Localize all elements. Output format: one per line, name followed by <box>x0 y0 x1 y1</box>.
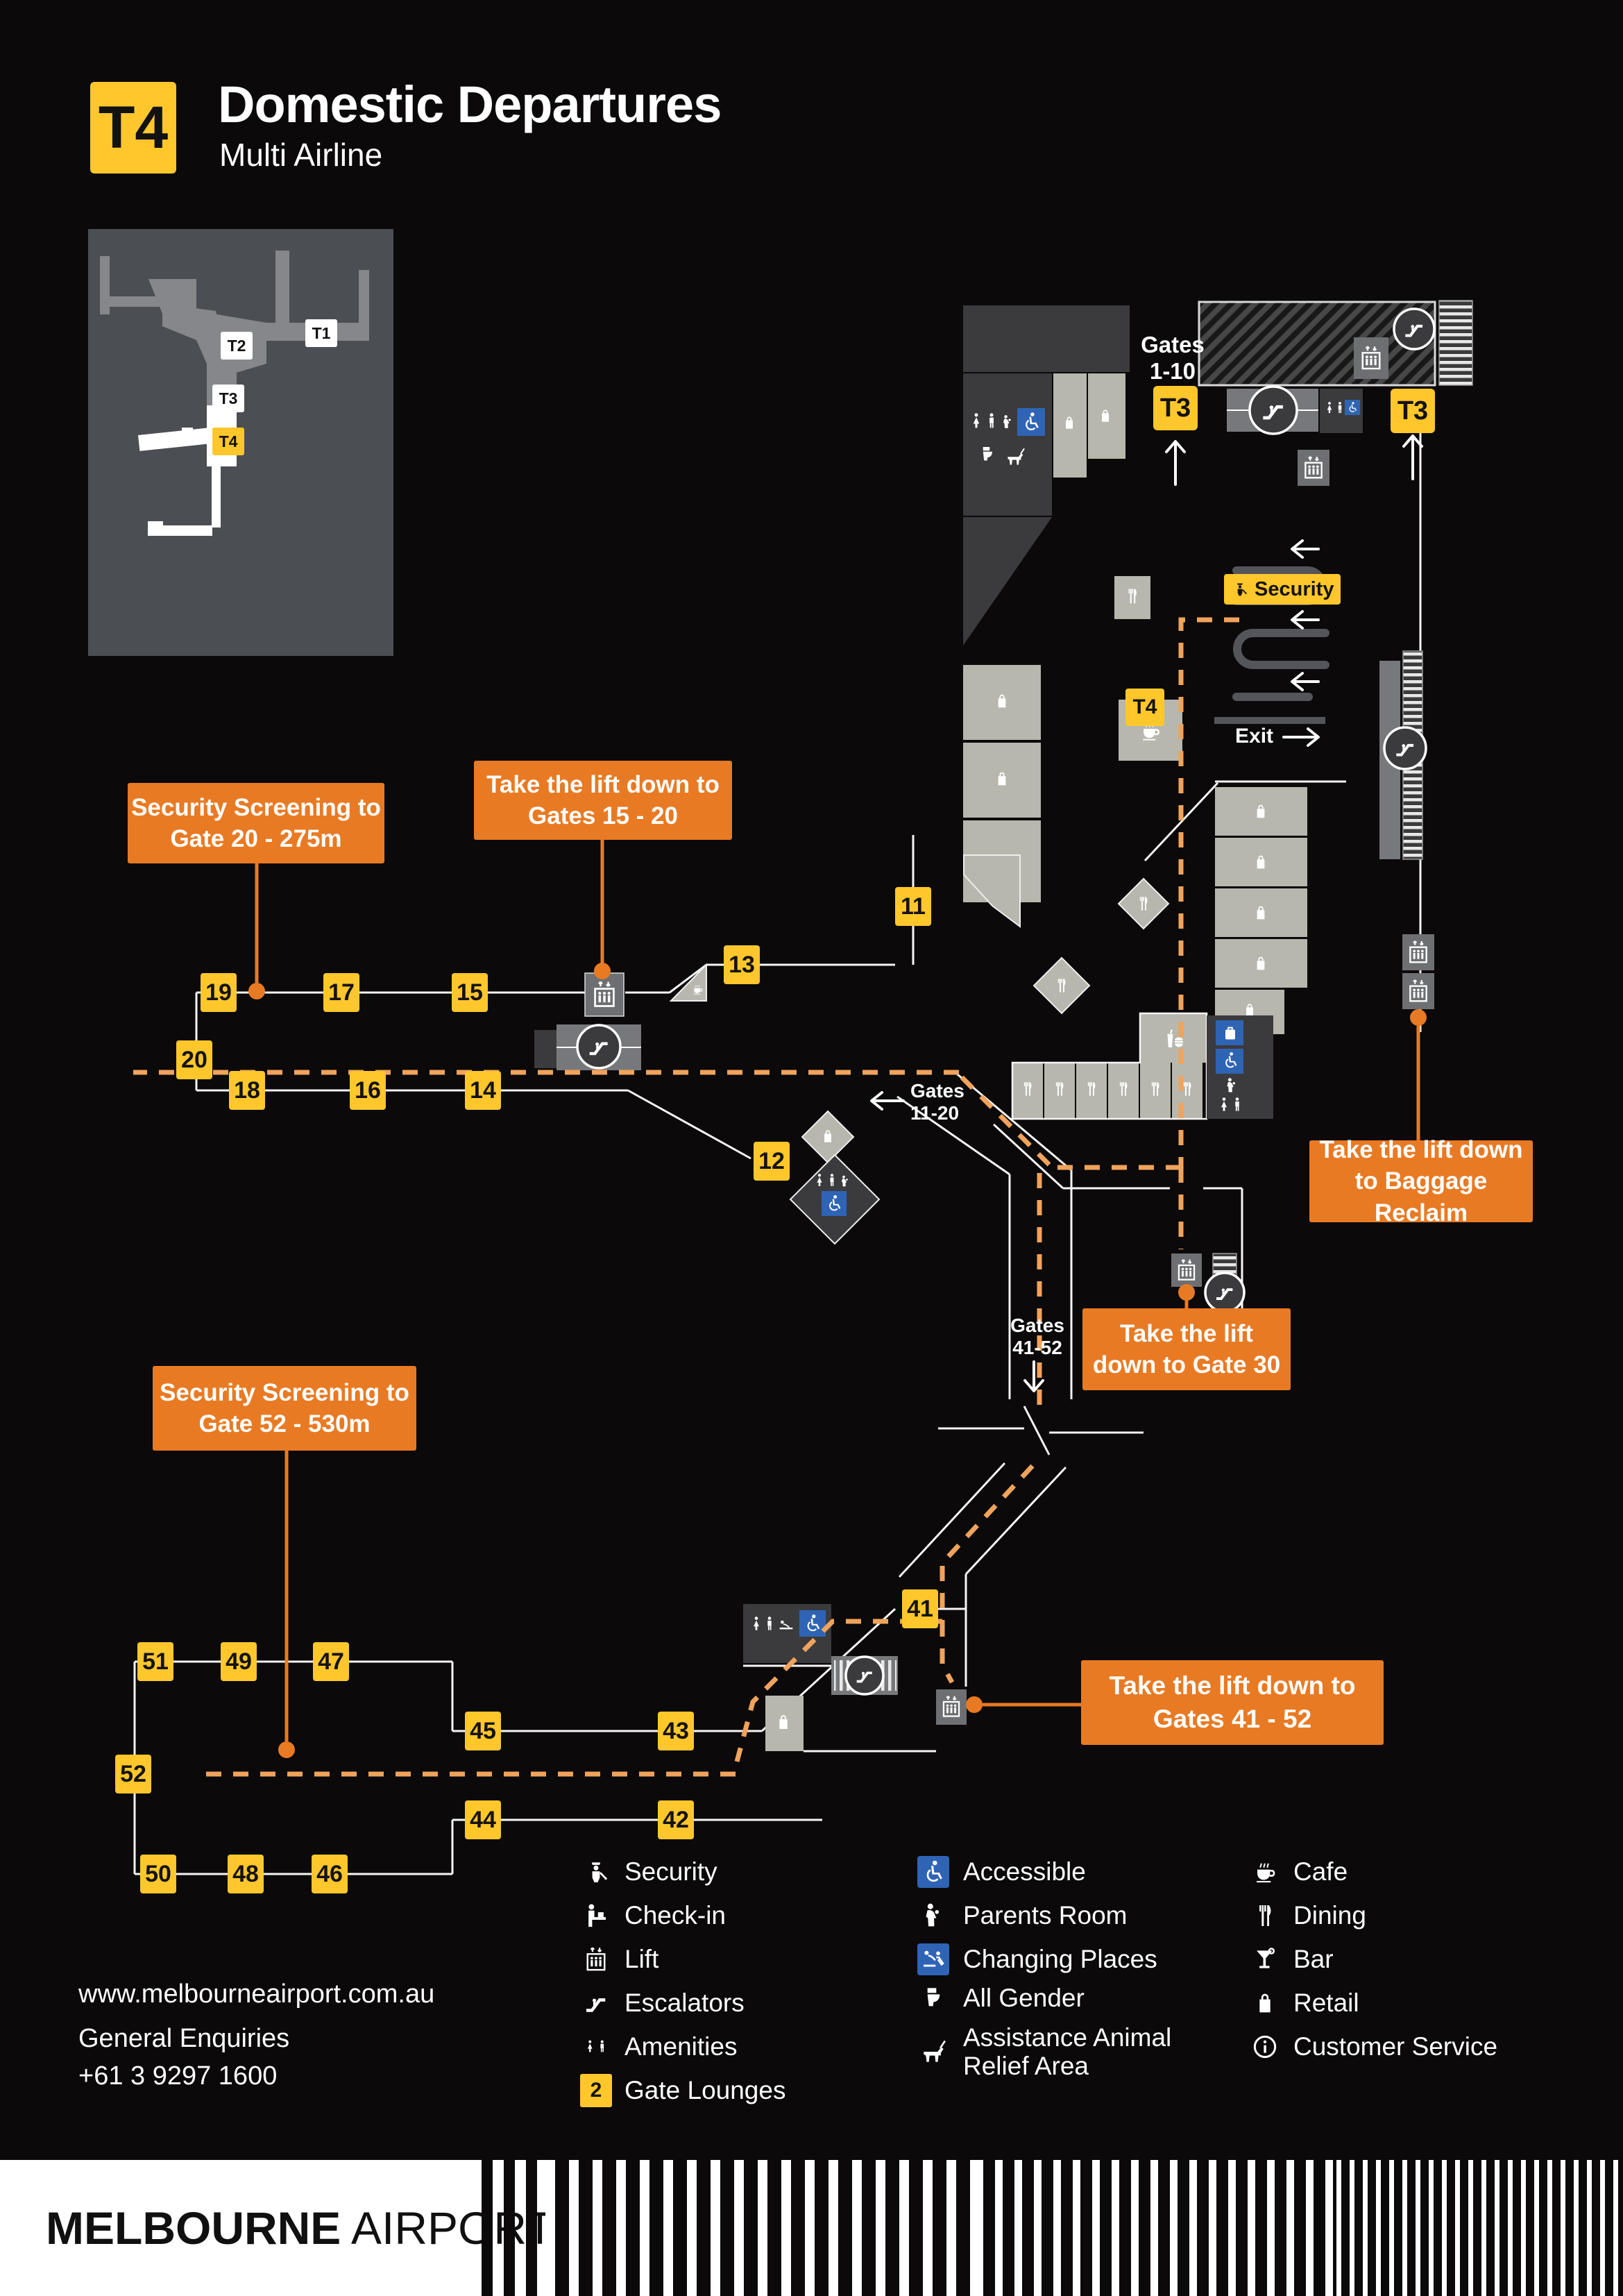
terminal-badge: T4 <box>90 82 176 174</box>
escalator-gates15 <box>534 1024 641 1070</box>
legend-customer-service: Customer Service <box>1249 2031 1497 2063</box>
legend-assistance-animal: Assistance Animal Relief Area <box>917 2024 1171 2080</box>
gate-badge-13: 13 <box>724 945 760 984</box>
gate-badge-19: 19 <box>201 973 237 1012</box>
lift-top-right <box>1354 337 1388 379</box>
callout-lift-baggage: Take the lift downto Baggage Reclaim <box>1309 1140 1533 1222</box>
gate-badge-14: 14 <box>465 1071 501 1110</box>
gate-badge-46: 46 <box>312 1855 348 1893</box>
minimap-t2-label: T2 <box>221 332 253 360</box>
gate-badge-16: 16 <box>350 1071 386 1110</box>
legend-checkin: Check-in <box>580 1900 726 1932</box>
gates-11-20-label: Gates 11-20 <box>910 1080 965 1124</box>
legend-gate-lounges: 2 Gate Lounges <box>580 2074 785 2107</box>
legend-lift: Lift <box>580 1943 658 1975</box>
gate-badge-11: 11 <box>895 887 931 926</box>
gate-badge-41: 41 <box>902 1589 938 1628</box>
escalator-top-right <box>1394 309 1434 349</box>
stairs-top-right <box>1439 301 1472 385</box>
accessible-icon <box>917 1856 949 1888</box>
gate-badge-47: 47 <box>313 1642 349 1681</box>
lift-gates4152 <box>936 1689 967 1725</box>
bar-icon <box>1249 1943 1281 1975</box>
gate-badge-52: 52 <box>115 1755 151 1793</box>
callout-lift-gates-15-20: Take the lift down toGates 15 - 20 <box>474 761 732 840</box>
footer-logo-box: MELBOURNE AIRPORT <box>0 2160 545 2296</box>
retail-diamond <box>802 1111 853 1163</box>
legend-security: Security <box>580 1856 717 1888</box>
dining-icon <box>1249 1900 1281 1932</box>
gate-badge-15: 15 <box>452 973 488 1012</box>
amenities-bottom-block <box>743 1604 831 1663</box>
legend-bar: Bar <box>1249 1943 1334 1975</box>
security-icon <box>1231 580 1249 598</box>
legend-cafe: Cafe <box>1249 1856 1348 1888</box>
terminal-map-page: T4 Domestic Departures Multi Airline T1 … <box>0 0 1623 2296</box>
exit-label: Exit <box>1235 725 1273 749</box>
gate-badge-42: 42 <box>658 1800 694 1839</box>
legend-accessible: Accessible <box>917 1856 1086 1888</box>
minimap-t4-label: T4 <box>212 428 244 455</box>
callout-security-gate20: Security Screening toGate 20 - 275m <box>128 783 384 863</box>
gate-badge-20: 20 <box>176 1040 212 1079</box>
lift-mid <box>1298 450 1329 486</box>
general-enquiries-label: General Enquiries <box>78 2024 289 2054</box>
map-break <box>938 1406 1144 1455</box>
walkway-escalator-bottom <box>831 1656 898 1695</box>
barcode-stripes <box>1336 2160 1623 2296</box>
gate-badge-48: 48 <box>228 1855 264 1893</box>
gates-1-10-label: Gates 1-10 <box>1110 332 1235 385</box>
gates-41-52-label: Gates 41-52 <box>999 1315 1076 1359</box>
legend-retail: Retail <box>1249 1987 1359 2019</box>
gate-badge-45: 45 <box>465 1712 501 1750</box>
brand-logo: MELBOURNE AIRPORT <box>46 2202 554 2254</box>
gate-badge-43: 43 <box>658 1712 694 1750</box>
gate-badge-51: 51 <box>137 1642 173 1681</box>
gate-badge-49: 49 <box>221 1642 257 1681</box>
t4-map-badge: T4 <box>1125 689 1164 726</box>
t3-badge-left: T3 <box>1153 386 1198 430</box>
page-subtitle: Multi Airline <box>219 136 382 174</box>
page-title: Domestic Departures <box>218 75 721 134</box>
legend-parents-room: Parents Room <box>917 1900 1128 1932</box>
gate-badge-17: 17 <box>323 973 359 1012</box>
amenities-tall-block <box>1207 1015 1273 1119</box>
parents-room-icon <box>917 1900 949 1932</box>
all-gender-icon <box>917 1982 949 2014</box>
callout-security-gate52: Security Screening toGate 52 - 530m <box>153 1366 416 1451</box>
gate-lounge-badge-icon: 2 <box>580 2074 612 2107</box>
escalator-mid-cluster <box>1227 387 1363 434</box>
minimap-t1-label: T1 <box>305 319 337 347</box>
lift-icon <box>580 1943 612 1975</box>
retail-icon <box>1249 1987 1281 2019</box>
barcode-stripes <box>976 2160 1336 2296</box>
security-icon <box>580 1856 612 1888</box>
upper-level-buildings <box>963 305 1182 902</box>
legend-dining: Dining <box>1249 1900 1366 1932</box>
changing-places-icon <box>917 1943 949 1975</box>
dining-diamonds <box>964 855 1169 1013</box>
amenities-diamond <box>790 1155 879 1244</box>
lift-gate30 <box>1171 1253 1202 1287</box>
legend-changing-places: Changing Places <box>917 1943 1157 1975</box>
security-badge: Security <box>1224 574 1341 605</box>
callout-lift-gate30: Take the liftdown to Gate 30 <box>1082 1308 1291 1390</box>
gate-badge-18: 18 <box>229 1071 265 1110</box>
website-url: www.melbourneairport.com.au <box>78 1980 434 2009</box>
legend-escalators: Escalators <box>580 1987 745 2019</box>
legend-all-gender: All Gender <box>917 1982 1085 2014</box>
phone-number: +61 3 9297 1600 <box>78 2061 277 2091</box>
retail-bottom <box>765 1696 804 1751</box>
cafe-triangle <box>671 965 706 1001</box>
locator-minimap: T1 T2 T3 T4 <box>88 229 393 656</box>
cafe-icon <box>1249 1856 1281 1888</box>
assistance-animal-icon <box>917 2036 949 2068</box>
escalators-icon <box>580 1987 612 2019</box>
gate-badge-12: 12 <box>754 1142 790 1181</box>
terminal-badge-label: T4 <box>99 94 168 162</box>
lifts-baggage <box>1402 934 1434 1009</box>
retail-column-right <box>1215 787 1307 1034</box>
gate-badge-50: 50 <box>140 1855 176 1893</box>
food-court <box>1012 1013 1207 1119</box>
barcode-stripes <box>545 2160 976 2296</box>
lift-gates15 <box>585 973 624 1016</box>
callout-lift-gates-41-52: Take the lift down toGates 41 - 52 <box>1081 1660 1384 1745</box>
customer-service-icon <box>1249 2031 1281 2063</box>
legend-amenities: Amenities <box>580 2031 737 2063</box>
amenities-icon <box>580 2031 612 2063</box>
minimap-t3-label: T3 <box>212 385 244 412</box>
gates-41-52-outlines <box>135 1463 1066 1874</box>
t3-badge-right: T3 <box>1391 389 1435 433</box>
check-in-icon <box>580 1900 612 1932</box>
gate-badge-44: 44 <box>465 1800 501 1839</box>
stairs-escalator-lower-right <box>1379 651 1426 859</box>
